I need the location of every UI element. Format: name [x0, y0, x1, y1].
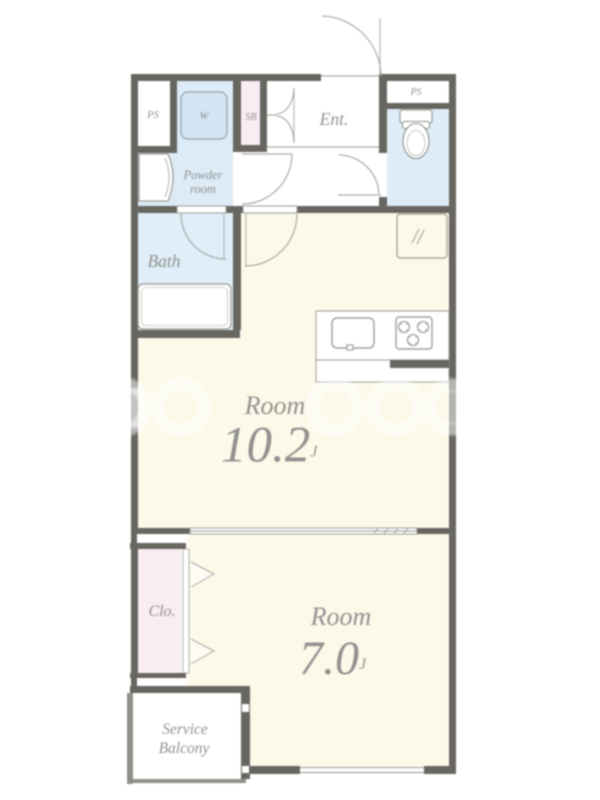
svg-text:7.0J: 7.0J: [299, 632, 367, 685]
svg-text:PS: PS: [409, 87, 421, 98]
svg-text:room: room: [190, 182, 216, 196]
svg-text:W: W: [200, 111, 210, 122]
svg-text:SB: SB: [245, 112, 256, 123]
svg-text:PS: PS: [146, 110, 159, 121]
svg-text:Balcony: Balcony: [159, 740, 210, 757]
svg-text:Ent.: Ent.: [319, 109, 349, 129]
svg-text:10.2J: 10.2J: [221, 418, 318, 474]
svg-text:Room: Room: [310, 602, 372, 631]
svg-text:Service: Service: [162, 721, 208, 738]
svg-text:Bath: Bath: [147, 251, 180, 271]
svg-text:Powder: Powder: [183, 168, 223, 182]
svg-text:Room: Room: [244, 391, 306, 420]
svg-text:Clo.: Clo.: [148, 603, 175, 620]
